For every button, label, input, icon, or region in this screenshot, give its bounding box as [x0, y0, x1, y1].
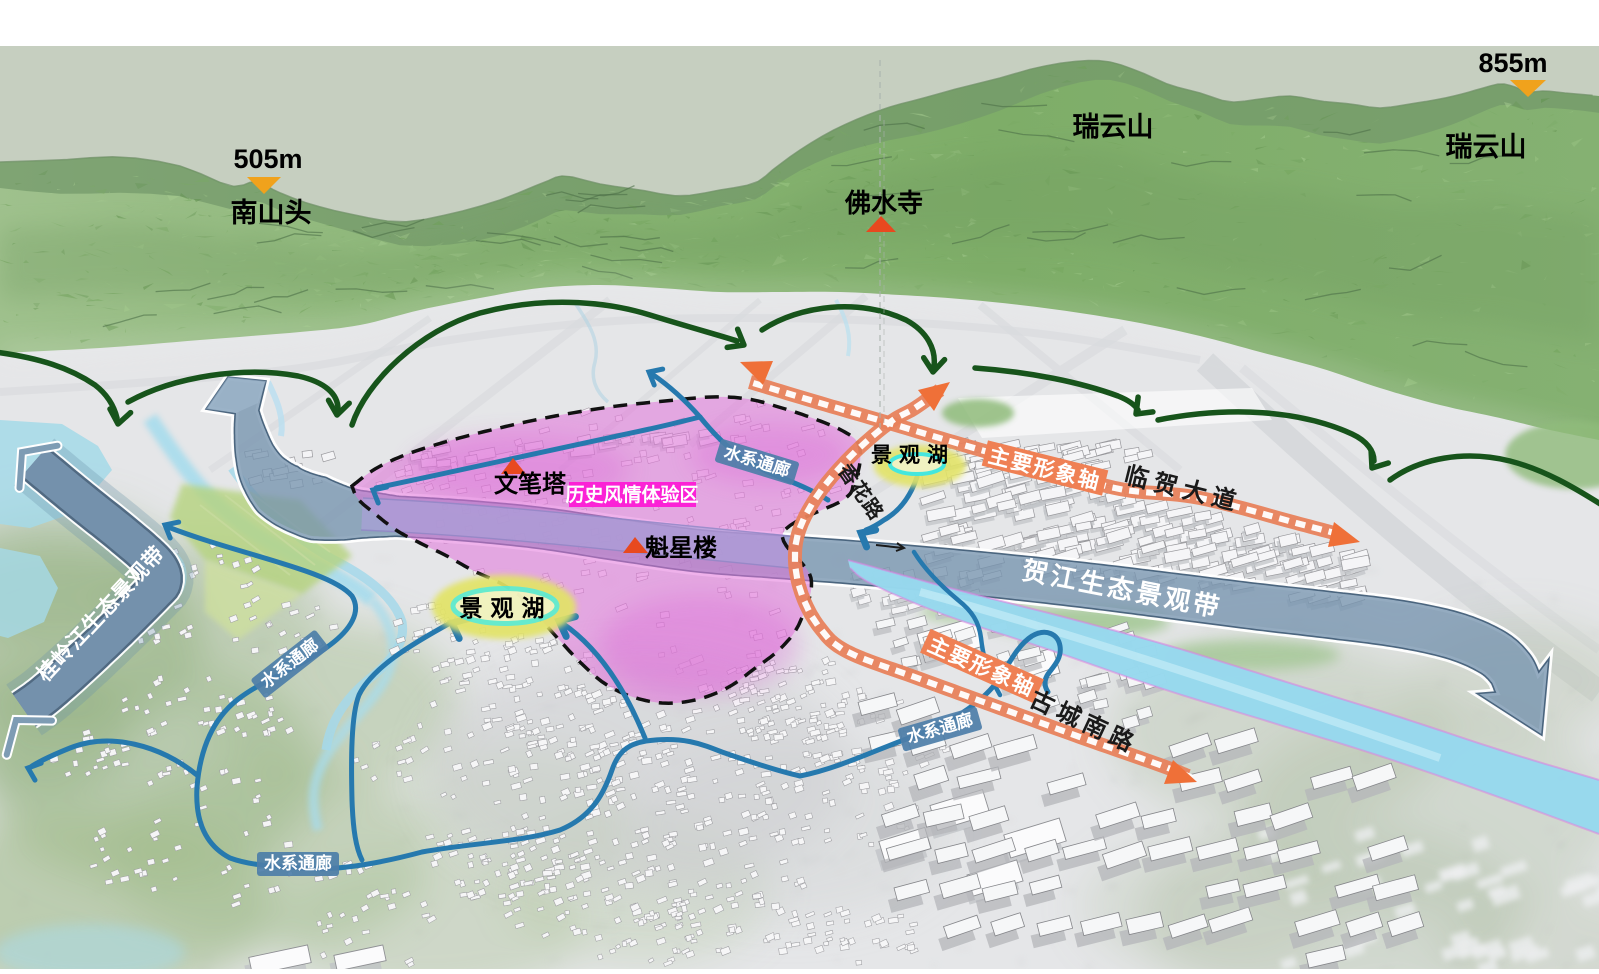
svg-text:景观湖: 景观湖: [460, 595, 553, 621]
svg-text:南山头: 南山头: [231, 198, 312, 228]
svg-text:历史风情体验区: 历史风情体验区: [565, 483, 698, 506]
svg-text:文笔塔: 文笔塔: [494, 470, 567, 498]
svg-text:瑞云山: 瑞云山: [1446, 132, 1527, 162]
svg-text:魁星楼: 魁星楼: [645, 534, 717, 562]
svg-text:505m: 505m: [233, 144, 302, 174]
svg-text:水系通廊: 水系通廊: [264, 853, 332, 873]
svg-text:景观湖: 景观湖: [871, 444, 955, 467]
svg-text:855m: 855m: [1478, 48, 1547, 78]
svg-text:瑞云山: 瑞云山: [1073, 112, 1154, 142]
svg-text:佛水寺: 佛水寺: [844, 188, 923, 218]
